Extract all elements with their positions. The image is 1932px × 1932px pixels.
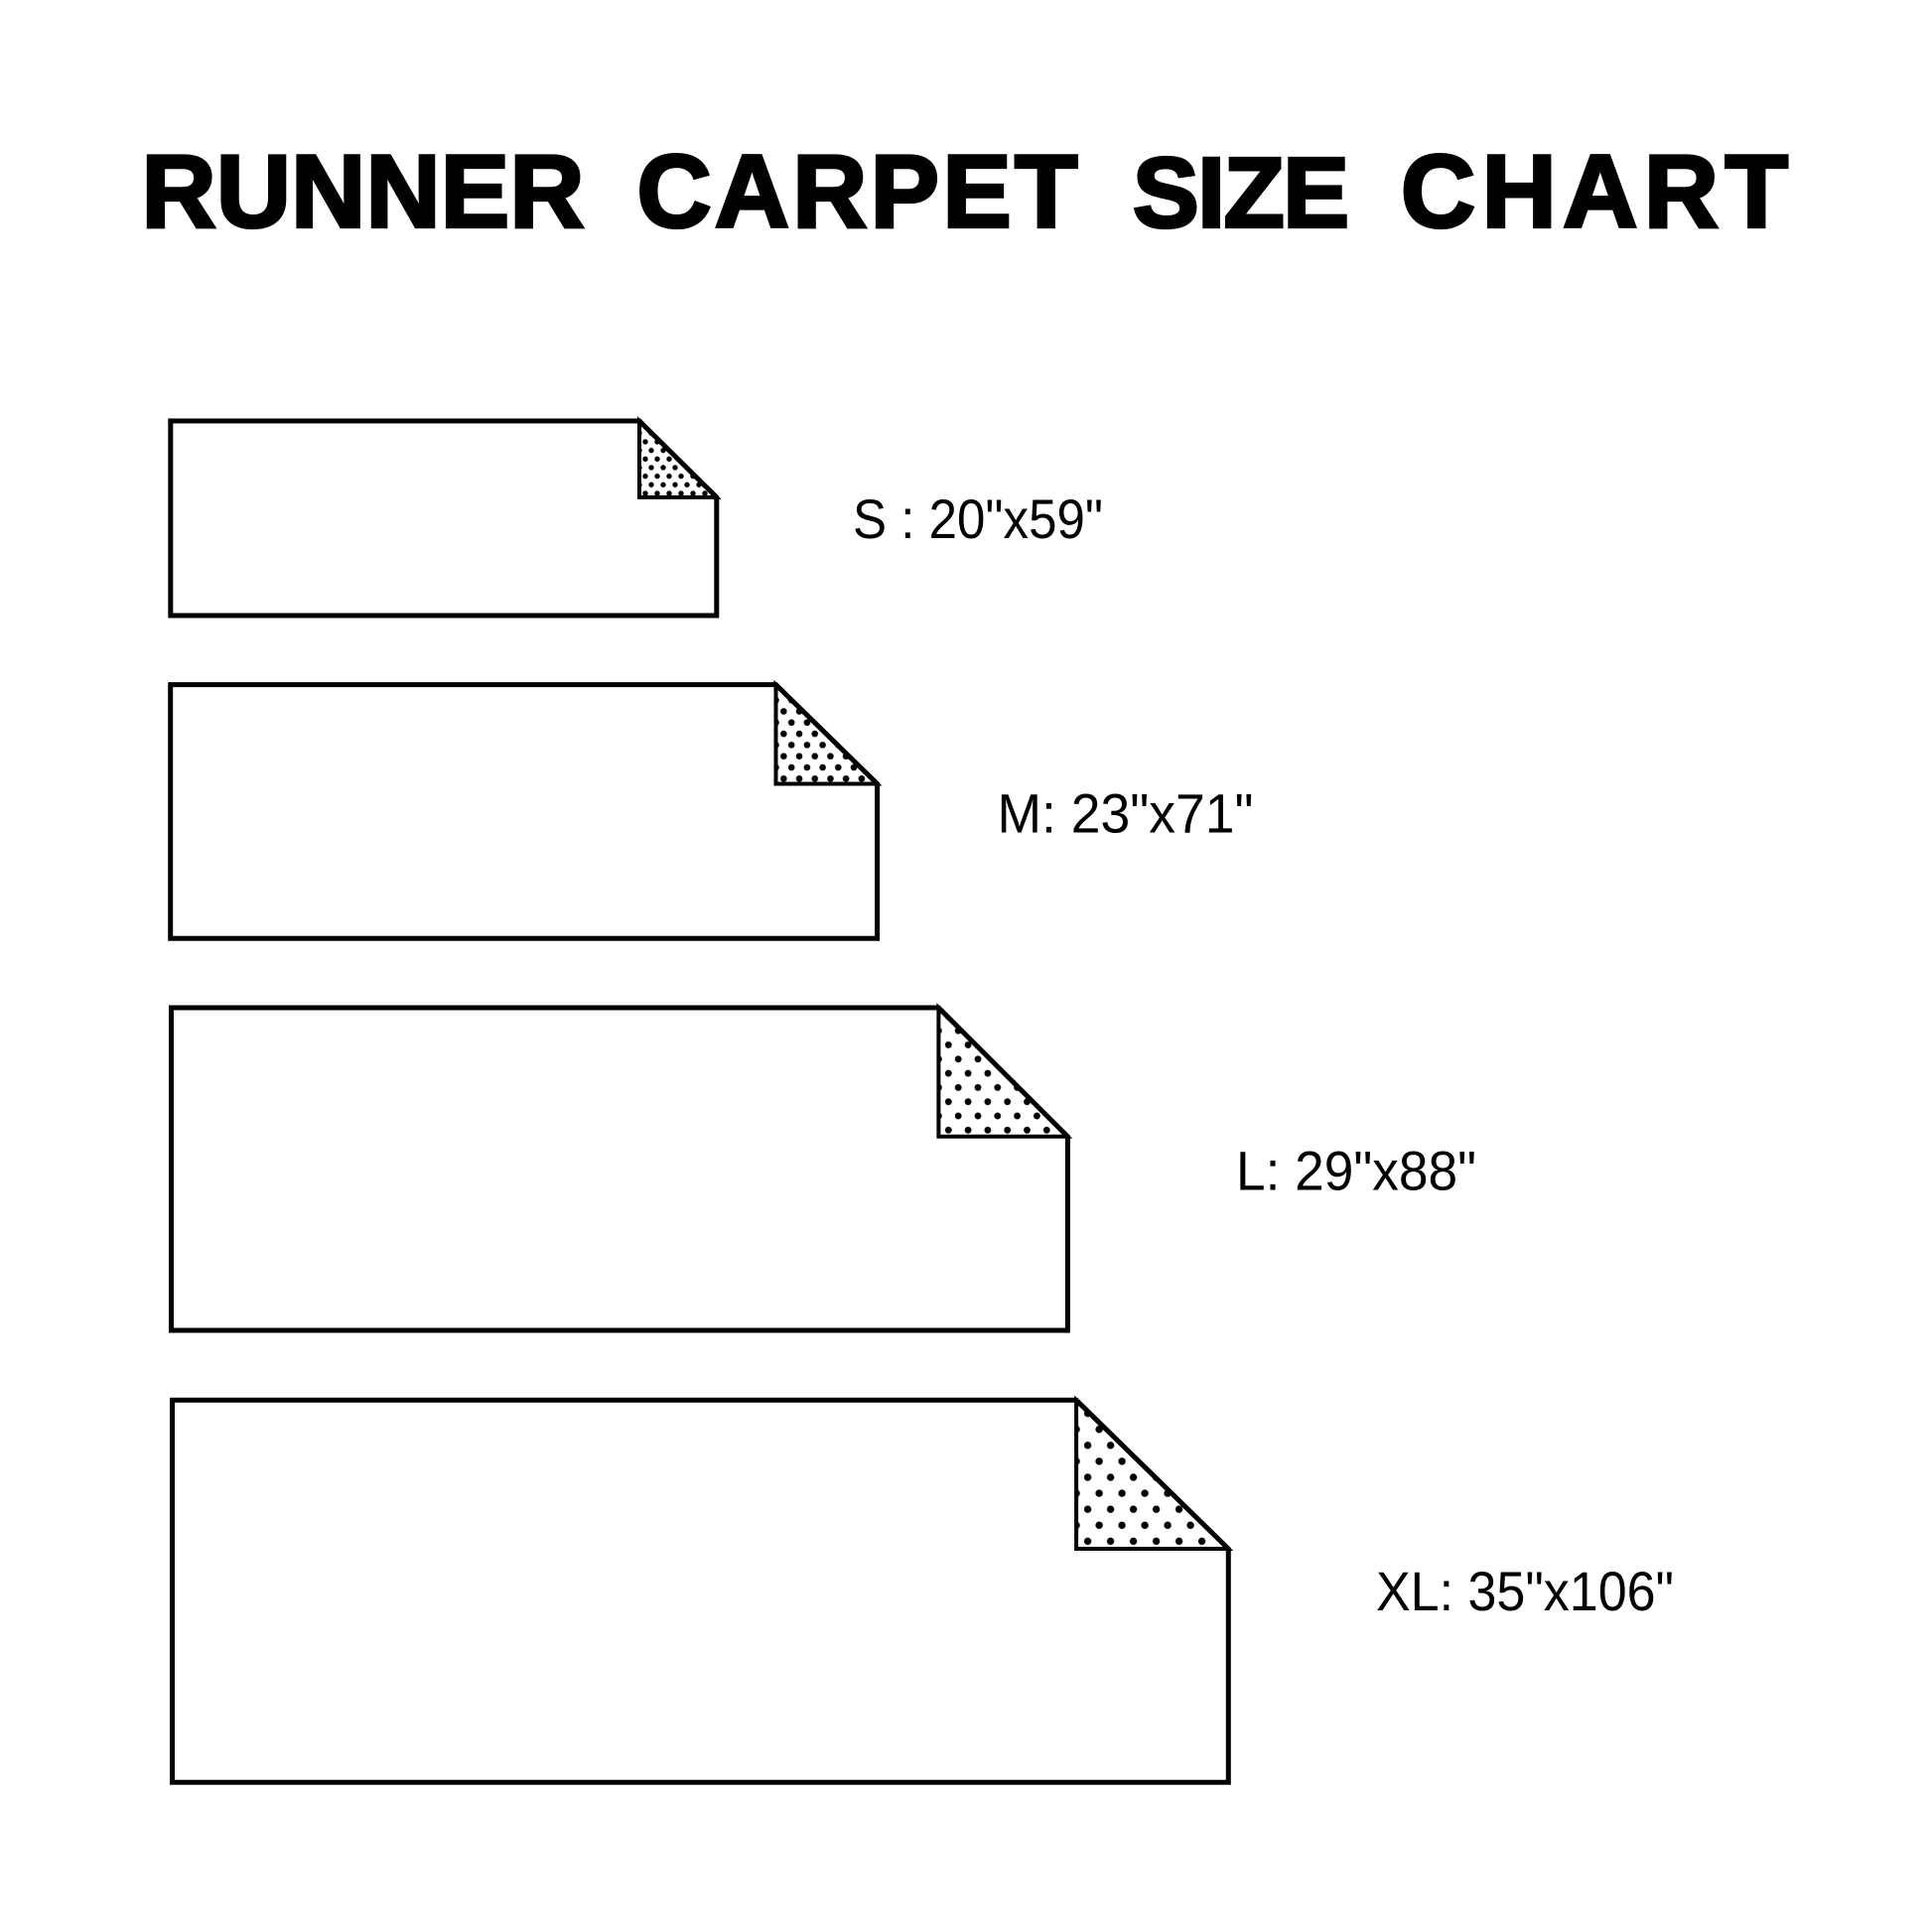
svg-text:S : 20"x59": S : 20"x59" — [853, 487, 1103, 550]
svg-text:CHART: CHART — [1401, 135, 1788, 250]
svg-text:CARPET: CARPET — [637, 135, 1078, 250]
svg-text:RUNNER: RUNNER — [142, 135, 585, 250]
svg-text:L: 29"x88": L: 29"x88" — [1236, 1140, 1476, 1202]
svg-text:SIZE: SIZE — [1133, 138, 1349, 249]
svg-text:XL: 35"x106": XL: 35"x106" — [1376, 1560, 1674, 1622]
svg-text:M: 23"x71": M: 23"x71" — [998, 782, 1254, 845]
